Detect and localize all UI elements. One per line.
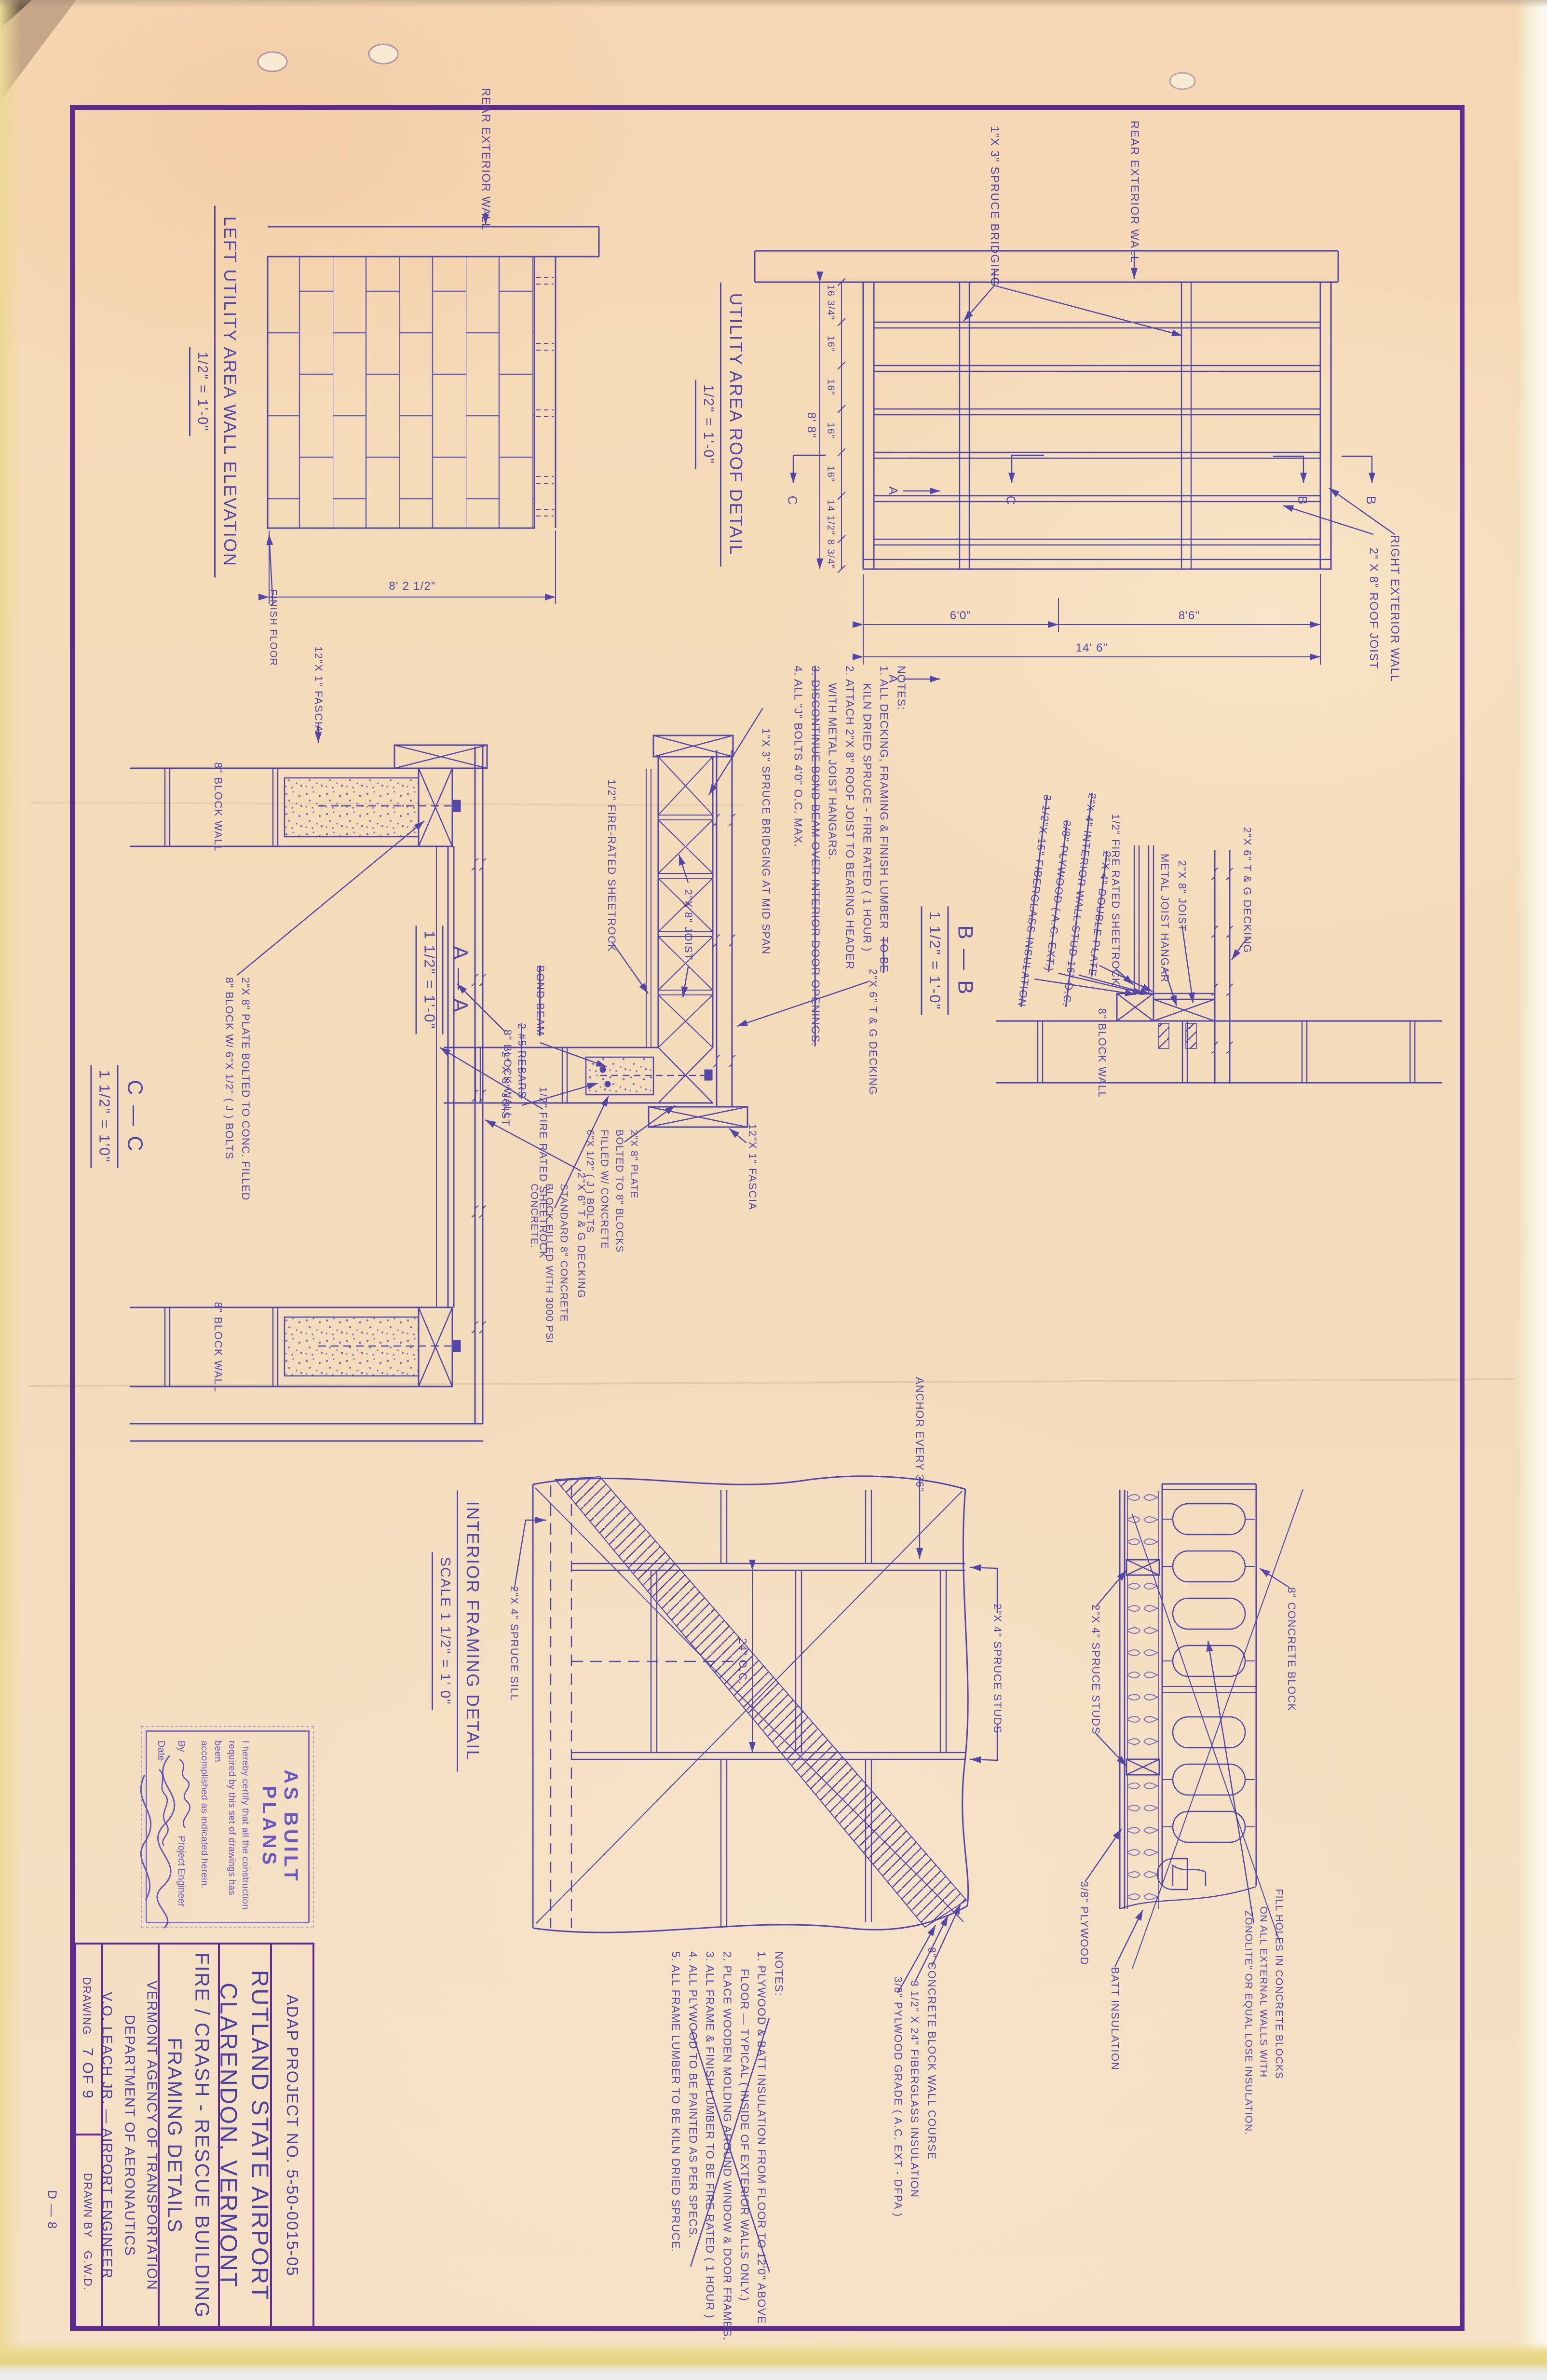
section-c-label: C — C bbox=[117, 1065, 147, 1168]
section-a-plate-label: 2"X 8" PLATE BOLTED TO 8" BLOCKS FILLED … bbox=[582, 1129, 641, 1253]
notes-bottom-3: 3. ALL FRAME & FINISH LUMBER TO BE FIRE … bbox=[702, 1951, 719, 2340]
roof-title: UTILITY AREA ROOF DETAIL 1/2" = 1'-0" bbox=[695, 283, 746, 567]
stamp-date-label: Date bbox=[155, 1741, 166, 1761]
notes-top-3: 3. DISCONTINUE BOND BEAM OVER INTERIOR D… bbox=[807, 666, 824, 1046]
interior-title-text: INTERIOR FRAMING DETAIL bbox=[457, 1491, 483, 1772]
elevation-title-text: LEFT UTILITY AREA WALL ELEVATION bbox=[214, 206, 240, 578]
roof-dim-1: 16 3/4" bbox=[825, 285, 836, 320]
interior-plywood-label: 3/8" PYLWOOD GRADE ( A.C. EXT - DFPA ) bbox=[892, 1977, 904, 2217]
roof-dim-bottom-1: 6'0" bbox=[950, 609, 972, 623]
section-b-scale: 1 1/2" = 1'-0" bbox=[921, 906, 948, 1015]
stamp-by-role: Project Engineer bbox=[176, 1836, 187, 1907]
roof-dim-7: 8 3/4" bbox=[825, 539, 836, 569]
roof-dim-5: 16" bbox=[825, 466, 836, 482]
section-marker-a1: A bbox=[886, 487, 901, 496]
interior-studs-label: 2"X 4" SPRUCE STUDS bbox=[991, 1604, 1004, 1734]
spruce-bridging-label: 1"X 3" SPRUCE BRIDGING bbox=[988, 126, 1001, 287]
section-a-block-wall-label: 8" BLOCK WALL bbox=[501, 1030, 514, 1120]
date-scrawl bbox=[155, 1767, 170, 1849]
signature-scrawl bbox=[176, 1757, 192, 1830]
stamp-line-2: required by this set of drawings has bee… bbox=[211, 1741, 239, 1913]
section-a-scale: 1 1/2" = 1'-0" bbox=[416, 925, 442, 1034]
notes-bottom-5: 5. ALL FRAME LUMBER TO BE KILN DRIED SPR… bbox=[667, 1951, 684, 2340]
section-marker-b1: B bbox=[1295, 496, 1310, 505]
section-c-title: C — C 1 1/2" = 1'0" bbox=[91, 1065, 147, 1168]
notes-bottom-2: 2. PLACE WOODEN MOLDING AROUND WINDOW & … bbox=[719, 1951, 736, 2340]
interior-anchor-label: ANCHOR EVERY 36" bbox=[913, 1377, 926, 1492]
section-b-title: B — B 1 1/2" = 1'-0" bbox=[921, 906, 977, 1015]
notes-bottom-heading: NOTES: bbox=[770, 1951, 787, 2340]
stamp-title: AS BUILT PLANS bbox=[258, 1741, 301, 1913]
stamp-by-label: By bbox=[176, 1741, 187, 1752]
airport-name: RUTLAND STATE AIRPORT CLARENDON, VERMONT bbox=[213, 1970, 275, 2301]
notes-top-4: 4. ALL "J" BOLTS 4'0" O.C. MAX. bbox=[789, 666, 807, 1046]
wall-plan-fill-holes-note: FILL HOLES IN CONCRETE BLOCKS ON ALL EXT… bbox=[1241, 1889, 1287, 2135]
drawing-number-cell: DRAWING 7 OF 9 bbox=[79, 1977, 96, 2099]
interior-fiberglass-label: 3 1/2" X 24" FIBERGLASS INSULATION bbox=[908, 1980, 921, 2198]
section-marker-b2: B bbox=[1364, 496, 1379, 505]
section-c-block-wall-label-top: 8" BLOCK WALL bbox=[212, 762, 224, 853]
section-a-decking-label: 2"X 6" T & G DECKING bbox=[867, 969, 879, 1095]
section-b-hangar-label: METAL JOIST HANGAR bbox=[1158, 854, 1171, 983]
section-a-title: A — A 1 1/2" = 1'-0" bbox=[416, 925, 472, 1034]
wall-plan-studs-label: 2"X 4" SPRUCE STUDS bbox=[1089, 1605, 1102, 1735]
notes-top-2a: 2. ATTACH 2"X 8" ROOF JOIST TO BEARING H… bbox=[841, 666, 858, 1046]
wall-plan-block-label: 8" CONCRETE BLOCK bbox=[1285, 1587, 1298, 1712]
section-b-joist-label: 2"X 8" JOIST bbox=[1176, 860, 1188, 932]
section-a-sheetrock-label: 1/2" FIRE-RATED SHEETROCK bbox=[605, 779, 618, 952]
notes-bottom-4: 4. ALL PLYWOOD TO BE PAINTED AS PER SPEC… bbox=[684, 1951, 702, 2340]
notes-bottom-1b: FLOOR — TYPICAL ( INSIDE OF EXTERIOR WAL… bbox=[736, 1951, 753, 2340]
section-b-label: B — B bbox=[948, 906, 977, 1015]
roof-dim-6: 14 1/2" bbox=[825, 500, 836, 535]
notes-top-2b: WITH METAL JOIST HANGARS. bbox=[824, 666, 841, 1046]
section-a-bond-beam-label: BOND BEAM bbox=[534, 966, 546, 1036]
section-c-block-wall-label-bottom: 8" BLOCK WALL bbox=[212, 1302, 224, 1392]
section-a-fascia-label: 12"X 1" FASCIA bbox=[746, 1124, 759, 1210]
elevation-width-dim: 8' 2 1/2" bbox=[389, 580, 435, 593]
interior-block-course-label: 8" CONCRETE BLOCK WALL COURSE bbox=[925, 1947, 938, 2160]
roof-dim-4: 16" bbox=[825, 422, 836, 439]
section-a-rebars-label: 2 #5 REBARS bbox=[516, 1023, 528, 1099]
roof-joist-label: 2" X 8" ROOF JOIST bbox=[1367, 548, 1380, 670]
roof-dim-overall-left: 8' 8" bbox=[804, 412, 818, 438]
agency-name: VERMONT AGENCY OF TRANSPORTATION DEPARTM… bbox=[95, 1981, 163, 2291]
interior-sill-label: 2"X 4" SPRUCE SILL bbox=[508, 1586, 520, 1701]
wall-plan-batt-label: BATT INSULATION bbox=[1109, 1967, 1121, 2071]
finish-floor-label: FINISH FLOOR bbox=[268, 589, 279, 666]
roof-dim-bottom-overall: 14' 6" bbox=[1075, 641, 1108, 655]
section-b-sheetrock-label: 1/2" FIRE RATED SHEETROCK bbox=[1109, 814, 1122, 986]
right-exterior-wall-label: RIGHT EXTERIOR WALL bbox=[1388, 535, 1401, 682]
notes-bottom: NOTES: 1. PLYWOOD & BATT INSULATION FROM… bbox=[667, 1951, 787, 2340]
section-b-decking-label: 2"X 6" T & G DECKING bbox=[1241, 827, 1253, 953]
roof-dim-bottom-2: 8'6" bbox=[1179, 609, 1200, 623]
scanned-blueprint: { "palette":{"paper":"#f4dcba","ink":"#5… bbox=[0, 0, 1547, 2380]
roof-rear-wall-label: REAR EXTERIOR WALL bbox=[1127, 121, 1141, 263]
roof-dim-2: 16" bbox=[825, 336, 836, 352]
notes-top-heading: NOTES: bbox=[893, 666, 910, 1046]
notes-bottom-1a: 1. PLYWOOD & BATT INSULATION FROM FLOOR … bbox=[753, 1951, 770, 2340]
elevation-title: LEFT UTILITY AREA WALL ELEVATION 1/2" = … bbox=[189, 206, 240, 578]
interior-framing-drawing bbox=[514, 1476, 997, 1993]
notes-top: NOTES: 1. ALL DECKING, FRAMING & FINISH … bbox=[789, 666, 909, 1046]
section-marker-c1: C bbox=[785, 496, 800, 505]
roof-dim-3: 16" bbox=[825, 379, 836, 395]
wall-plan-plywood-label: 3/8" PLYWOOD bbox=[1078, 1881, 1090, 1966]
elevation-scale-text: 1/2" = 1'-0" bbox=[189, 347, 214, 436]
roof-title-text: UTILITY AREA ROOF DETAIL bbox=[720, 283, 746, 567]
stamp-line-1: I hereby certify that all the constructi… bbox=[239, 1741, 252, 1913]
section-c-plate-label: 2"X 8" PLATE BOLTED TO CONC. FILLED 8" B… bbox=[221, 977, 254, 1200]
drawing-subject: FIRE / CRASH - RESCUE BUILDING FRAMING D… bbox=[161, 1953, 216, 2318]
drawn-by-cell: DRAWN BY G.W.D. bbox=[81, 2173, 95, 2291]
interior-scale-text: SCALE 1 1/2" = 1' 0" bbox=[432, 1552, 457, 1710]
section-a-joist-label: 2"X 8" JOIST bbox=[682, 889, 694, 961]
section-a-bridging-label: 1"X 3" SPRUCE BRIDGING AT MID SPAN bbox=[760, 728, 772, 955]
interior-oc-dim: 24" O.C. bbox=[736, 1638, 749, 1685]
project-number: ADAP PROJECT NO. 5-50-0015-05 bbox=[283, 1994, 301, 2276]
sheet-code: D — 8 bbox=[45, 2190, 60, 2230]
section-c-fascia-label: 12"X 1" FASCIA bbox=[312, 646, 325, 733]
stamp-line-3: accomplished as indicated herein. bbox=[198, 1741, 211, 1913]
rear-exterior-wall-label: REAR EXTERIOR WALL bbox=[479, 88, 492, 231]
blueprint-sheet: LEFT UTILITY AREA WALL ELEVATION 1/2" = … bbox=[0, 0, 1547, 2380]
interior-title: INTERIOR FRAMING DETAIL SCALE 1 1/2" = 1… bbox=[432, 1491, 483, 1772]
section-a-standard-block-label: STANDARD 8" CONCRETE BLOCK FILLED WITH 3… bbox=[527, 1183, 570, 1343]
as-built-stamp: AS BUILT PLANS I hereby certify that all… bbox=[146, 1730, 310, 1923]
roof-plan-drawing bbox=[755, 251, 1395, 679]
roof-scale-text: 1/2" = 1'-0" bbox=[695, 380, 720, 469]
section-a-label: A — A bbox=[442, 925, 472, 1034]
section-b-block-wall-label: 8" BLOCK WALL bbox=[1096, 1008, 1108, 1099]
section-marker-c2: C bbox=[1004, 496, 1018, 505]
section-c-scale: 1 1/2" = 1'0" bbox=[91, 1065, 117, 1168]
elevation-drawing bbox=[268, 216, 599, 606]
